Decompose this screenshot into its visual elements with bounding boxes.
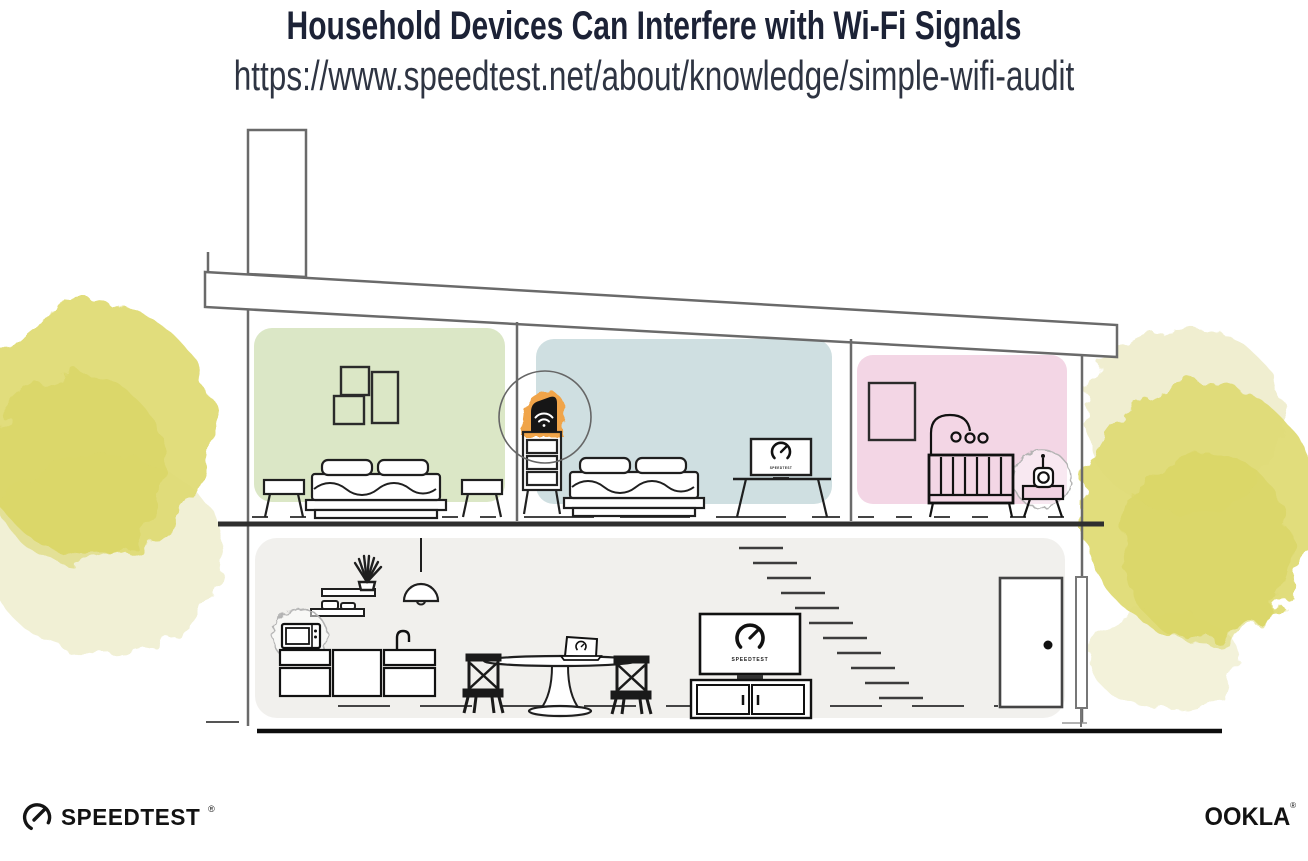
door-knob <box>1044 641 1053 650</box>
house-cross-section-illustration: SPEEDTEST <box>0 0 1308 861</box>
laptop <box>561 637 601 660</box>
tv-stand <box>737 675 763 679</box>
kitchen-cabinets <box>280 650 435 696</box>
header: Household Devices Can Interfere with Wi-… <box>0 4 1308 100</box>
downspout <box>1076 577 1087 727</box>
entry-door <box>1000 578 1062 707</box>
desk-monitor-label: SPEEDTEST <box>770 466 793 470</box>
ookla-reg-mark: ® <box>1290 801 1296 810</box>
speedtest-wordmark: SPEEDTEST <box>61 804 200 831</box>
ookla-logo: OOKLA ® <box>1200 803 1296 832</box>
speedtest-reg-mark: ® <box>208 804 215 814</box>
page-title: Household Devices Can Interfere with Wi-… <box>164 4 1145 49</box>
dining-table <box>484 656 636 666</box>
speedtest-logo: SPEEDTEST ® <box>20 800 217 834</box>
ookla-wordmark: OOKLA <box>1204 803 1290 832</box>
tv-screen <box>700 614 800 674</box>
speedtest-gauge-icon <box>20 800 54 834</box>
foliage-left <box>0 302 223 655</box>
media-console <box>691 680 811 718</box>
foliage-right <box>1082 328 1308 708</box>
tv-screen-label: SPEEDTEST <box>732 657 769 663</box>
infographic-page: Household Devices Can Interfere with Wi-… <box>0 0 1308 861</box>
source-url: https://www.speedtest.net/about/knowledg… <box>164 52 1145 100</box>
chimney <box>248 130 306 277</box>
tv-area: SPEEDTEST <box>691 614 811 718</box>
microwave-icon <box>282 624 320 648</box>
